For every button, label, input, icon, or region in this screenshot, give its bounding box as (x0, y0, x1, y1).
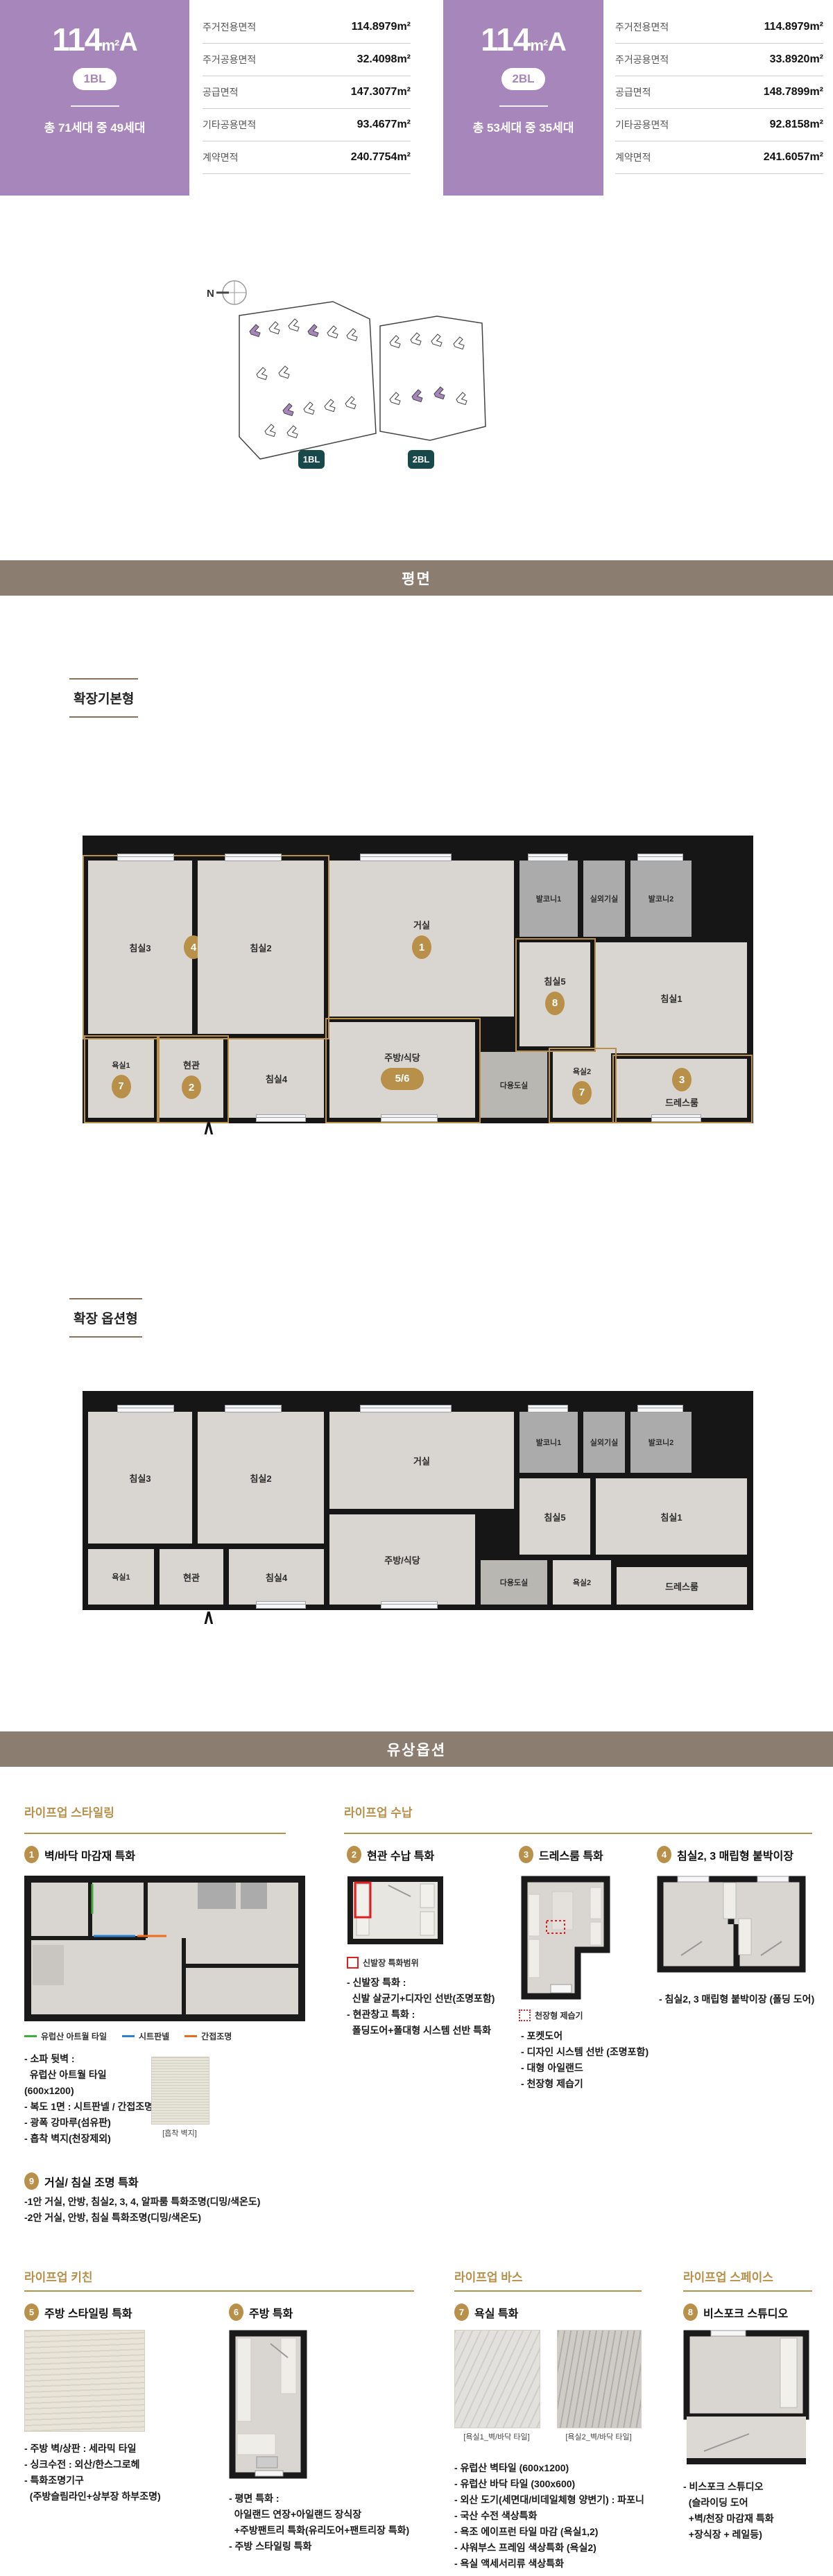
block-badge: 1BL (73, 68, 116, 90)
red-box-icon (347, 1957, 359, 1969)
room-bed1: 침실1 (596, 1478, 747, 1555)
legend-indirect-light: 간접조명 (184, 2030, 232, 2042)
room-entry: 현관 2 (160, 1039, 223, 1118)
room-balcony2: 발코니2 (630, 1412, 692, 1473)
room-bed5: 침실5 8 (519, 942, 590, 1046)
option-marker: 1 (412, 935, 431, 959)
option-marker: 5/6 (381, 1068, 424, 1090)
area-table-1bl: 주거전용면적114.8979m² 주거공용면적32.4098m² 공급면적147… (203, 11, 411, 174)
option8-miniplan (683, 2330, 809, 2465)
window-icon (651, 1114, 701, 1122)
option2-details: - 신발장 특화 : 신발 살균기+디자인 선반(조명포함)- 현관창고 특화 … (347, 1975, 520, 2039)
option7-details: - 유럽산 벽타일 (600x1200)- 유럽산 바닥 타일 (300x600… (454, 2460, 683, 2572)
group-title-kitchen: 라이프업 키친 (24, 2267, 93, 2285)
option1-details: - 소파 뒷벽 : 유럽산 아트월 타일(600x1200)- 복도 1면 : … (24, 2051, 156, 2147)
room-bed2: 침실2 (198, 1412, 324, 1544)
legend-swatch (24, 2035, 37, 2037)
window-icon (381, 1601, 438, 1609)
legend-swatch (184, 2035, 197, 2037)
room-kitchen: 주방/식당 5/6 (329, 1022, 475, 1118)
option3-details: - 포켓도어- 디자인 시스템 선반 (조명포함)- 대형 아일랜드- 천장형 … (521, 2028, 680, 2092)
option-item-5-title: 5주방 스타일링 특화 (24, 2303, 132, 2321)
option9-details: -1안 거실, 안방, 침실2, 3, 4, 알파룸 특화조명(디밍/색온도)-… (24, 2194, 413, 2226)
table-row: 주거전용면적114.8979m² (203, 11, 411, 44)
room-balcony1: 발코니1 (519, 1412, 578, 1473)
divider (71, 105, 119, 107)
room-kitchen: 주방/식당 (329, 1514, 475, 1605)
room-living: 거실 1 (329, 861, 514, 1017)
option-item-7-title: 7욕실 특화 (454, 2303, 518, 2321)
table-row: 공급면적148.7899m² (615, 76, 823, 109)
option8-details: - 비스포크 스튜디오 (슬라이딩 도어 +벽/천장 마감재 특화 +장식장 +… (683, 2479, 833, 2543)
table-row: 공급면적147.3077m² (203, 76, 411, 109)
room-entry: 현관 (160, 1549, 223, 1605)
option-marker: 8 (545, 992, 565, 1015)
table-row: 기타공용면적92.8158m² (615, 109, 823, 141)
site-plan-map: N (201, 270, 562, 472)
group-title-space: 라이프업 스페이스 (683, 2267, 773, 2285)
group-underline (454, 2290, 642, 2292)
households-count: 총 53세대 중 35세대 (473, 118, 574, 135)
window-icon (637, 854, 683, 861)
room-bath1: 욕실1 7 (88, 1039, 154, 1118)
unit-name: 114m²A (52, 21, 137, 58)
group-title-styling: 라이프업 스타일링 (24, 1803, 114, 1820)
window-icon (256, 1601, 306, 1609)
option-item-8-title: 8비스포크 스튜디오 (683, 2303, 788, 2321)
room-bed3: 침실3 4 (88, 861, 192, 1034)
unit-card-2bl: 114m²A 2BL 총 53세대 중 35세대 (443, 0, 603, 196)
legend-artwall-tile: 유럽산 아트월 타일 (24, 2030, 107, 2042)
bath1-tile-sample-image (454, 2330, 540, 2428)
site-badge-2bl: 2BL (408, 450, 434, 469)
room-bed5: 침실5 (519, 1478, 590, 1555)
unit-name: 114m²A (481, 21, 566, 58)
svg-text:N: N (207, 288, 214, 300)
section-bar-floorplan: 평면 (0, 560, 833, 596)
table-row: 계약면적241.6057m² (615, 141, 823, 174)
section-bar-paid-options: 유상옵션 (0, 1731, 833, 1767)
room-balcony1: 발코니1 (519, 861, 578, 937)
households-count: 총 71세대 중 49세대 (44, 118, 146, 135)
window-icon (256, 1114, 306, 1122)
option6-miniplan (229, 2330, 307, 2479)
room-dressroom: 3 드레스룸 (617, 1059, 747, 1118)
window-icon (637, 1405, 683, 1412)
option-item-2-title: 2현관 수납 특화 (347, 1846, 434, 1863)
legend-ceiling-dehumidifier: 천장형 제습기 (519, 2009, 583, 2021)
table-row: 기타공용면적93.4677m² (203, 109, 411, 141)
group-underline (683, 2290, 812, 2292)
option4-details: - 침실2, 3 매립형 붙박이장 (폴딩 도어) (659, 1991, 825, 2007)
group-underline (344, 1833, 812, 1834)
group-title-bath: 라이프업 바스 (454, 2267, 523, 2285)
window-icon (528, 1405, 568, 1412)
legend-sheet-panel: 시트판넬 (122, 2030, 169, 2042)
wallpaper-caption: [흡착 벽지] (151, 2127, 208, 2138)
group-title-storage: 라이프업 수납 (344, 1803, 413, 1820)
room-bed2: 침실2 (198, 861, 324, 1034)
window-icon (225, 1405, 282, 1412)
window-icon (117, 854, 174, 861)
option2-legend: 신발장 특화범위 (347, 1957, 419, 1969)
option5-details: - 주방 벽/상판 : 세라믹 타일- 싱크수전 : 외산/한스그로헤- 특화조… (24, 2441, 205, 2505)
option1-legend: 유럽산 아트월 타일 시트판넬 간접조명 (24, 2030, 232, 2042)
ceramic-tile-sample-image (24, 2330, 145, 2432)
entrance-arrow: ∧ (203, 1605, 215, 1630)
area-table-2bl: 주거전용면적114.8979m² 주거공용면적33.8920m² 공급면적148… (615, 11, 823, 174)
group-underline (24, 1833, 286, 1834)
red-dotted-box-icon (519, 2009, 531, 2021)
table-row: 계약면적240.7754m² (203, 141, 411, 174)
room-bath2: 욕실2 7 (553, 1052, 611, 1118)
room-bath2: 욕실2 (553, 1560, 611, 1605)
entrance-arrow: ∧ (203, 1116, 215, 1140)
plan2-title: 확장 옵션형 (69, 1298, 142, 1338)
bath2-tile-caption: [욕실2_벽/바닥 타일] (557, 2431, 640, 2442)
window-icon (360, 854, 452, 861)
option4-miniplan (657, 1876, 806, 1973)
plan1-title: 확장기본형 (69, 678, 138, 718)
legend-shoecab-range: 신발장 특화범위 (347, 1957, 419, 1969)
option-item-4-title: 4침실2, 3 매립형 붙박이장 (657, 1846, 793, 1863)
wallpaper-sample-image (151, 2057, 209, 2125)
room-bed3: 침실3 (88, 1412, 192, 1544)
option3-miniplan (519, 1874, 612, 2002)
option-item-1-title: 1벽/바닥 마감재 특화 (24, 1846, 135, 1863)
room-balcony2: 발코니2 (630, 861, 692, 937)
legend-swatch (122, 2035, 135, 2037)
option1-miniplan (24, 1876, 305, 2021)
floor-plan-basic: 침실3 4 침실2 거실 1 발코니1 실외기실 발코니2 침실5 8 침실1 … (83, 836, 753, 1123)
option6-details: - 평면 특화 : 아일랜드 연장+아일랜드 장식장 +주방팬트리 특화(유리도… (229, 2491, 437, 2555)
room-utility: 다용도실 (481, 1560, 547, 1605)
table-row: 주거공용면적32.4098m² (203, 44, 411, 76)
bath2-tile-sample-image (557, 2330, 642, 2428)
window-icon (528, 854, 568, 861)
window-icon (360, 1405, 452, 1412)
option-marker: 3 (672, 1068, 692, 1091)
bath1-tile-caption: [욕실1_벽/바닥 타일] (454, 2431, 539, 2442)
floor-plan-option: 침실3 침실2 거실 발코니1 실외기실 발코니2 침실5 침실1 욕실1 현관 (83, 1391, 753, 1610)
window-icon (381, 1114, 438, 1122)
room-bath1: 욕실1 (88, 1549, 154, 1605)
compass-icon: N (207, 281, 246, 304)
room-living: 거실 (329, 1412, 514, 1509)
brochure-page: 114m²A 1BL 총 71세대 중 49세대 주거전용면적114.8979m… (0, 0, 833, 2576)
option2-miniplan (347, 1876, 444, 1945)
option-item-6-title: 6주방 특화 (229, 2303, 293, 2321)
room-bed1: 침실1 (596, 942, 747, 1053)
room-utility: 다용도실 (481, 1052, 547, 1118)
window-icon (225, 854, 282, 861)
divider (499, 105, 548, 107)
room-outdoor-unit: 실외기실 (583, 861, 625, 937)
option-marker: 7 (572, 1081, 592, 1105)
group-underline (24, 2290, 414, 2292)
room-outdoor-unit: 실외기실 (583, 1412, 625, 1473)
room-bed4: 침실4 (229, 1039, 324, 1118)
option-marker: 2 (182, 1075, 201, 1099)
room-bed4: 침실4 (229, 1549, 324, 1605)
room-dressroom: 드레스룸 (617, 1567, 747, 1605)
option-item-3-title: 3드레스룸 특화 (519, 1846, 603, 1863)
window-icon (117, 1405, 174, 1412)
option3-legend: 천장형 제습기 (519, 2009, 583, 2021)
table-row: 주거공용면적33.8920m² (615, 44, 823, 76)
option-item-9-title: 9거실/ 침실 조명 특화 (24, 2172, 139, 2190)
unit-card-1bl: 114m²A 1BL 총 71세대 중 49세대 (0, 0, 189, 196)
table-row: 주거전용면적114.8979m² (615, 11, 823, 44)
site-badge-1bl: 1BL (298, 450, 325, 469)
block-badge: 2BL (501, 68, 544, 90)
option-marker: 7 (112, 1075, 131, 1098)
